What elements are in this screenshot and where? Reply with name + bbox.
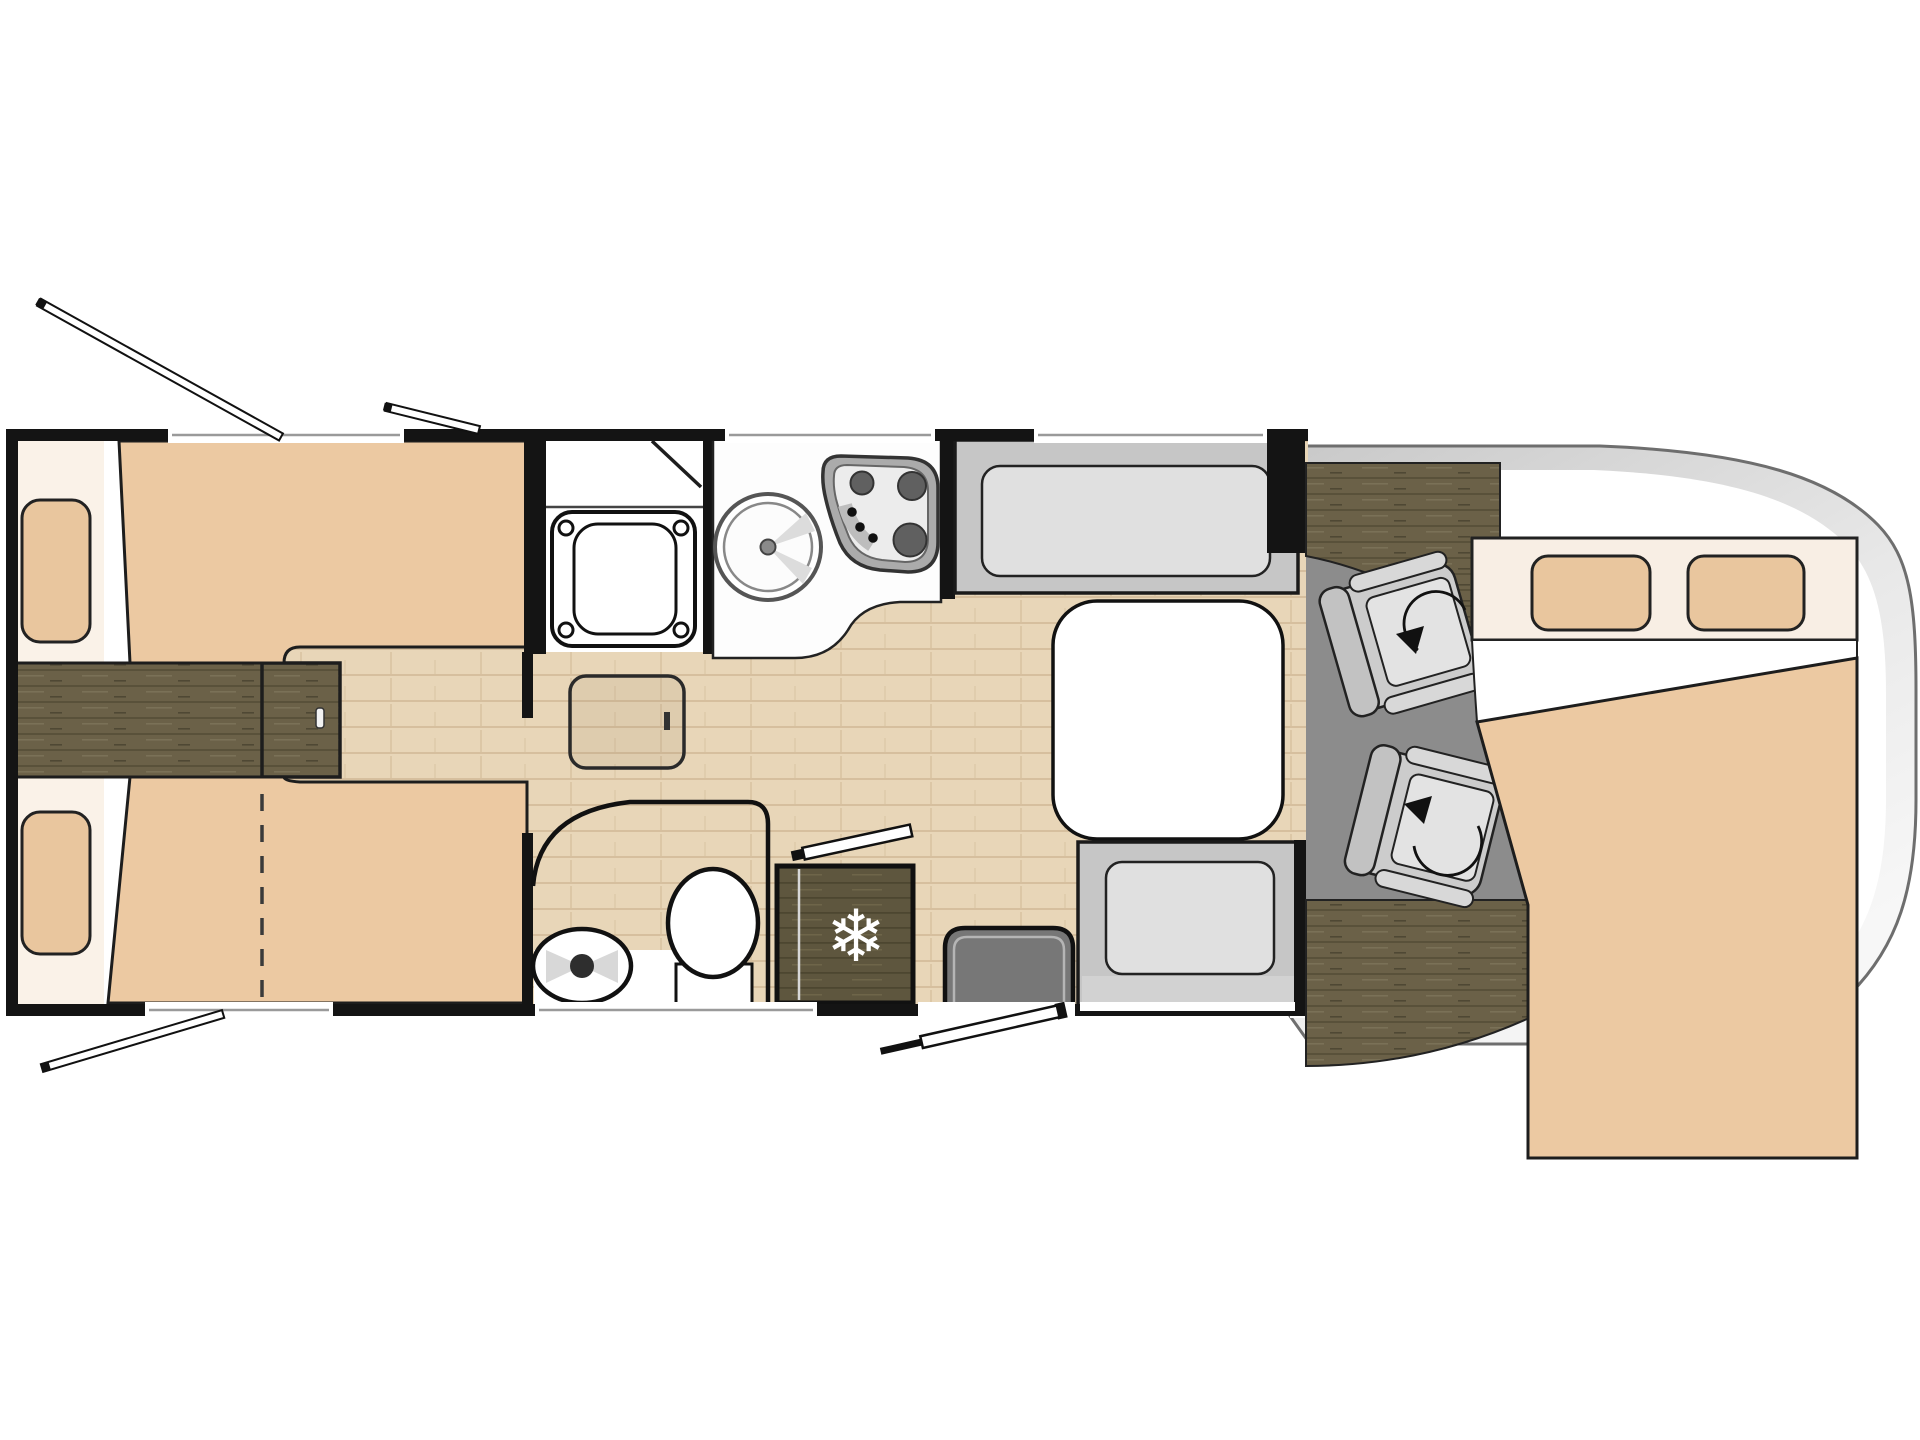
hatch-handle bbox=[664, 712, 670, 730]
shower-tray-corner-1 bbox=[559, 521, 573, 535]
open-window-pane-rear-bottom bbox=[41, 1010, 224, 1072]
dinette-bench-bottom-band bbox=[1082, 976, 1296, 1002]
overcab-bed bbox=[1472, 538, 1857, 1158]
partition-wall-lower-a bbox=[522, 652, 533, 718]
twin-bed-bottom bbox=[108, 777, 527, 1003]
sink-faucet bbox=[761, 540, 776, 555]
dinette-wall-stub bbox=[940, 429, 955, 599]
dinette-bench-top-seat bbox=[982, 466, 1270, 576]
floorplan-canvas: ❄ bbox=[0, 0, 1920, 1440]
shower-kitchen-wall bbox=[703, 438, 713, 654]
dinette-table bbox=[1053, 601, 1283, 839]
pillow-rear-top bbox=[22, 500, 90, 642]
open-window-pane-rear-top bbox=[35, 298, 283, 441]
stove-burner-small bbox=[851, 472, 874, 495]
window-rear-top bbox=[168, 427, 404, 443]
motorhome-floorplan-diagram: ❄ bbox=[0, 0, 1920, 1440]
twin-bed-top bbox=[119, 441, 527, 663]
center-walkway-dark-wood bbox=[12, 663, 262, 777]
overcab-bed-blanket bbox=[1477, 658, 1857, 1158]
stove-knob-2 bbox=[855, 522, 865, 532]
shower-tray-corner-4 bbox=[674, 623, 688, 637]
overcab-pillow-left bbox=[1532, 556, 1650, 630]
dinette-bench-bottom-seat bbox=[1106, 862, 1274, 974]
shower-tray-corner-2 bbox=[674, 521, 688, 535]
stove-burner-large bbox=[894, 524, 927, 557]
shower-tray-corner-3 bbox=[559, 623, 573, 637]
window-dinette bbox=[1034, 427, 1267, 443]
stove-burner-mid bbox=[898, 472, 926, 500]
toilet-bowl bbox=[668, 869, 758, 977]
bench-window-sliver bbox=[1080, 1002, 1295, 1011]
stove-knob-1 bbox=[847, 507, 857, 517]
wall-left bbox=[6, 429, 18, 1016]
pillow-rear-bottom bbox=[22, 812, 90, 954]
stove-knob-3 bbox=[868, 533, 878, 543]
washbasin-drain bbox=[570, 954, 594, 978]
step-cabinet-handle bbox=[316, 708, 324, 728]
partition-wall-wardrobe bbox=[524, 438, 546, 654]
overcab-pillow-right bbox=[1688, 556, 1804, 630]
entry-step bbox=[945, 928, 1073, 1008]
habitation-interior: ❄ bbox=[12, 429, 1308, 1009]
wall-corner-block bbox=[1267, 429, 1305, 553]
window-kitchen bbox=[725, 427, 935, 443]
shower-tray-inner bbox=[574, 524, 676, 634]
snowflake-icon: ❄ bbox=[826, 894, 886, 978]
window-bathroom bbox=[535, 1002, 817, 1017]
partition-wall-lower-b bbox=[522, 833, 533, 1009]
walkway-step-cabinet bbox=[262, 663, 340, 777]
window-rear-bottom bbox=[145, 1002, 333, 1018]
